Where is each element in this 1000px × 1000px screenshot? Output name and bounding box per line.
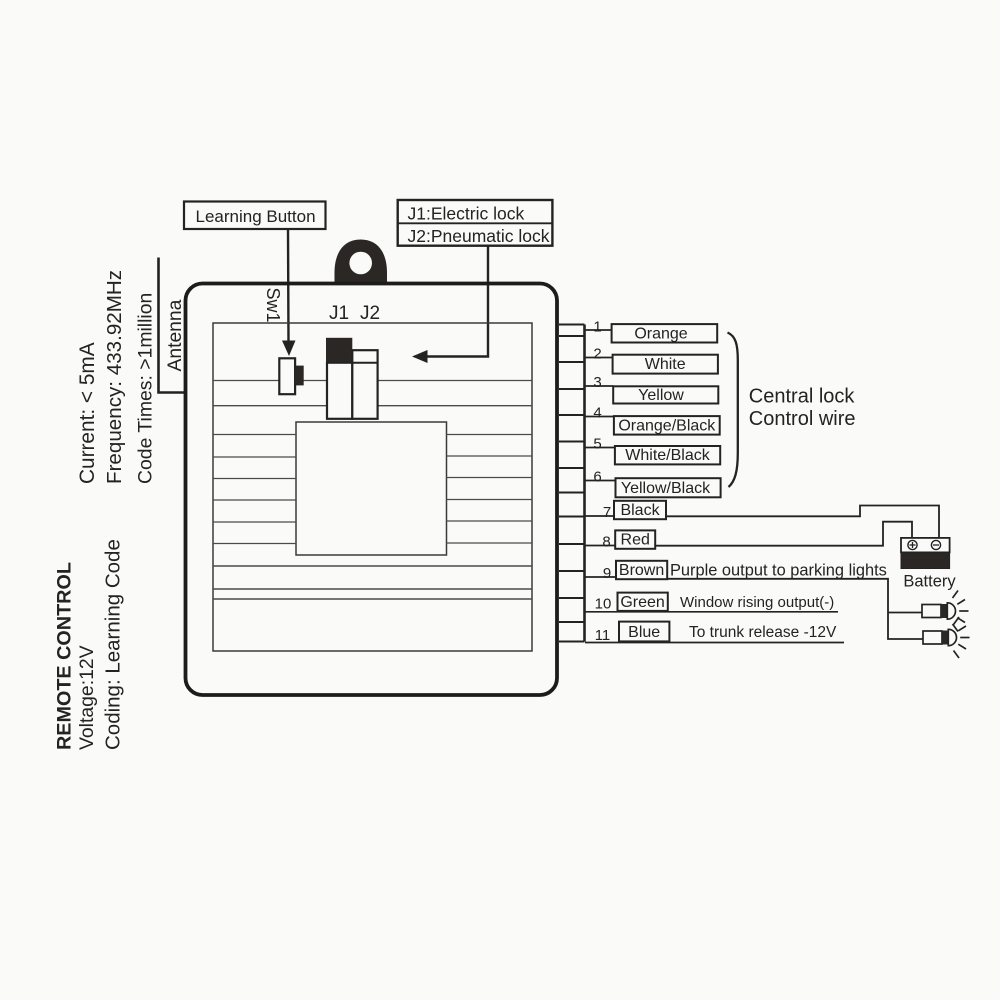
svg-text:Blue: Blue [628, 624, 660, 641]
svg-text:Central lock: Central lock [749, 386, 856, 408]
svg-text:Control wire: Control wire [749, 408, 856, 430]
svg-text:J2: J2 [360, 303, 380, 324]
svg-text:Yellow/Black: Yellow/Black [621, 480, 711, 497]
svg-text:White/Black: White/Black [625, 447, 710, 464]
svg-text:White: White [645, 356, 686, 373]
svg-text:9: 9 [603, 565, 611, 582]
svg-text:Orange: Orange [634, 325, 687, 342]
svg-text:11: 11 [595, 627, 611, 644]
svg-text:1: 1 [593, 319, 601, 336]
svg-text:Purple output to parking light: Purple output to parking lights [670, 562, 887, 580]
svg-text:J1: J1 [329, 303, 349, 324]
svg-text:J1:Electric lock: J1:Electric lock [408, 204, 525, 224]
svg-text:4: 4 [593, 405, 601, 422]
svg-text:Antenna: Antenna [165, 299, 186, 371]
svg-text:Window rising output(-): Window rising output(-) [680, 594, 834, 611]
svg-text:Voltage:12V: Voltage:12V [76, 645, 98, 750]
svg-text:REMOTE CONTROL: REMOTE CONTROL [54, 562, 76, 750]
svg-text:Learning Button: Learning Button [196, 207, 316, 226]
svg-text:Coding: Learning Code: Coding: Learning Code [102, 539, 125, 750]
svg-text:7: 7 [603, 504, 611, 521]
svg-text:2: 2 [593, 346, 601, 363]
svg-text:Red: Red [621, 532, 650, 549]
svg-text:10: 10 [595, 596, 612, 613]
svg-text:6: 6 [593, 469, 601, 486]
svg-text:5: 5 [593, 436, 601, 453]
svg-text:Sw1: Sw1 [263, 288, 283, 323]
svg-text:Battery: Battery [903, 573, 956, 591]
svg-text:Green: Green [620, 594, 664, 611]
svg-text:J2:Pneumatic lock: J2:Pneumatic lock [408, 226, 550, 246]
svg-text:To trunk release -12V: To trunk release -12V [689, 624, 837, 641]
svg-text:8: 8 [602, 534, 610, 551]
svg-text:Current: < 5mA: Current: < 5mA [76, 342, 99, 484]
svg-text:Frequency: 433.92MHz: Frequency: 433.92MHz [103, 270, 126, 484]
svg-text:Code Times: >1million: Code Times: >1million [135, 293, 157, 484]
svg-text:Yellow: Yellow [638, 387, 684, 404]
svg-text:Black: Black [620, 502, 660, 519]
svg-text:Brown: Brown [619, 562, 664, 579]
svg-text:Orange/Black: Orange/Black [618, 417, 716, 434]
svg-text:3: 3 [593, 374, 601, 391]
